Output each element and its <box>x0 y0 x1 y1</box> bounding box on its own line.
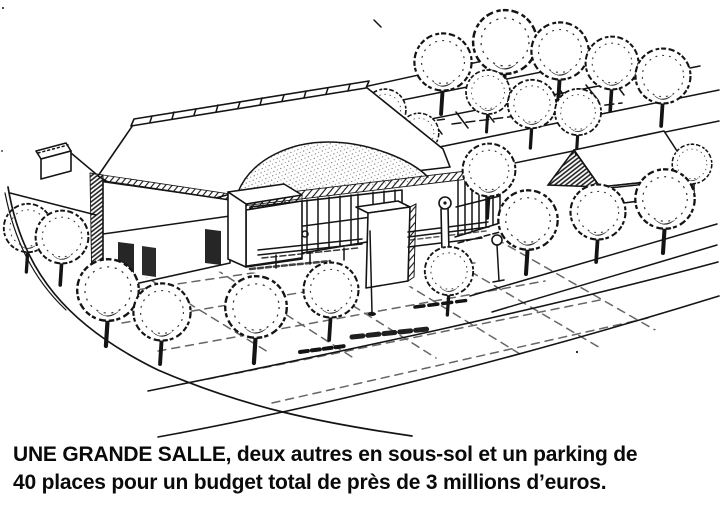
figure-illustration <box>0 0 721 440</box>
architectural-sketch <box>0 0 721 440</box>
window <box>205 229 221 265</box>
street-lamp <box>492 235 504 282</box>
left-parapet <box>36 143 96 179</box>
page: UNE GRANDE SALLE, deux autres en sous-so… <box>0 0 721 512</box>
canopy-beams <box>408 197 489 254</box>
caption-line-2: 40 places pour un budget total de près d… <box>13 469 711 497</box>
caption-line-1: UNE GRANDE SALLE, deux autres en sous-so… <box>13 441 711 469</box>
window <box>142 246 156 277</box>
figure-caption: UNE GRANDE SALLE, deux autres en sous-so… <box>0 440 721 497</box>
